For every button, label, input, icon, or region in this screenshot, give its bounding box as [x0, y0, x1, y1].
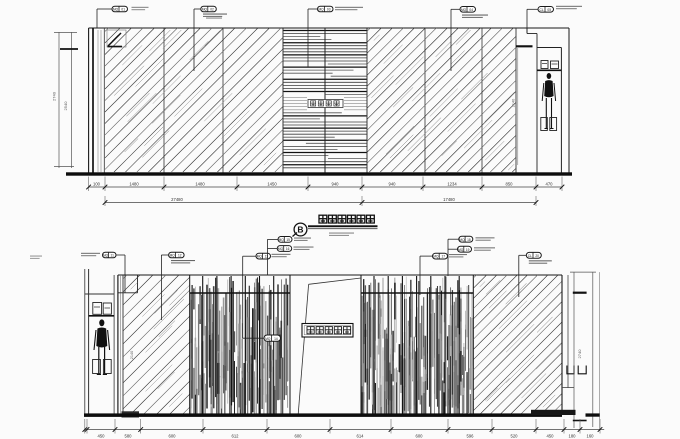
- svg-text:MQ: MQ: [202, 8, 208, 12]
- svg-text:03: 03: [327, 8, 331, 12]
- svg-text:520: 520: [511, 434, 519, 439]
- svg-text:17480: 17480: [443, 197, 455, 202]
- svg-text:MQ: MQ: [433, 255, 439, 259]
- svg-text:20: 20: [535, 254, 539, 258]
- svg-text:04: 04: [469, 8, 473, 12]
- svg-text:600: 600: [416, 434, 424, 439]
- svg-text:596: 596: [467, 434, 475, 439]
- svg-text:2740: 2740: [577, 349, 582, 359]
- svg-text:100: 100: [93, 182, 101, 187]
- svg-text:MQ: MQ: [257, 255, 263, 259]
- svg-text:MQ: MQ: [319, 8, 325, 12]
- svg-text:B: B: [297, 225, 303, 235]
- svg-text:1480: 1480: [129, 182, 139, 187]
- svg-text:MQ: MQ: [458, 248, 464, 252]
- svg-text:MQ: MQ: [170, 254, 176, 258]
- svg-text:1450: 1450: [267, 182, 277, 187]
- svg-text:470: 470: [546, 182, 554, 187]
- svg-text:11: 11: [111, 254, 115, 258]
- svg-text:2140: 2140: [130, 351, 134, 359]
- svg-text:14: 14: [274, 337, 278, 341]
- svg-text:02: 02: [210, 8, 214, 12]
- svg-text:MQ: MQ: [461, 8, 467, 12]
- svg-text:MQ: MQ: [103, 254, 109, 258]
- svg-text:612: 612: [232, 434, 240, 439]
- svg-text:2540: 2540: [63, 101, 68, 111]
- svg-text:600: 600: [295, 434, 303, 439]
- svg-text:MQ: MQ: [278, 247, 284, 251]
- svg-text:MQ: MQ: [265, 337, 271, 341]
- svg-text:2140: 2140: [512, 99, 516, 107]
- svg-text:12: 12: [178, 254, 182, 258]
- svg-text:19: 19: [466, 248, 470, 252]
- svg-text:17: 17: [442, 255, 446, 259]
- svg-text:MQ: MQ: [279, 238, 285, 242]
- svg-text:850: 850: [506, 182, 514, 187]
- svg-text:450: 450: [98, 434, 106, 439]
- svg-text:1480: 1480: [195, 182, 205, 187]
- svg-text:01: 01: [121, 8, 125, 12]
- svg-text:180: 180: [569, 434, 577, 439]
- svg-text:05: 05: [547, 8, 551, 12]
- svg-text:MQ: MQ: [113, 8, 119, 12]
- svg-text:940: 940: [389, 182, 397, 187]
- svg-text:15: 15: [286, 238, 290, 242]
- svg-text:940: 940: [332, 182, 340, 187]
- svg-text:CL: CL: [528, 254, 532, 258]
- svg-text:580: 580: [125, 434, 133, 439]
- svg-text:16: 16: [286, 247, 290, 251]
- svg-text:27480: 27480: [171, 197, 183, 202]
- svg-text:MQ: MQ: [459, 238, 465, 242]
- svg-text:18: 18: [467, 238, 471, 242]
- svg-text:614: 614: [357, 434, 365, 439]
- svg-text:2740: 2740: [52, 91, 57, 101]
- svg-text:600: 600: [169, 434, 177, 439]
- svg-text:CL: CL: [540, 8, 544, 12]
- svg-text:450: 450: [547, 434, 555, 439]
- svg-text:160: 160: [587, 434, 595, 439]
- svg-text:1234: 1234: [447, 182, 457, 187]
